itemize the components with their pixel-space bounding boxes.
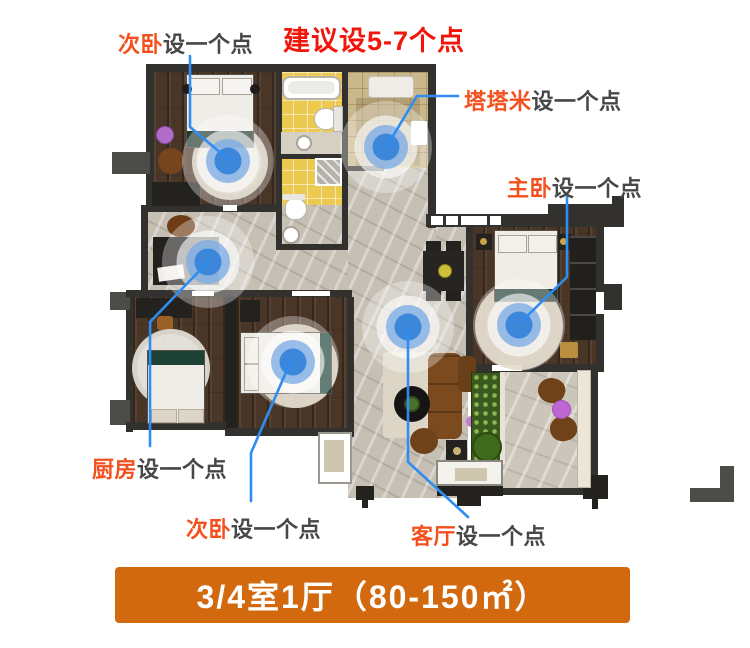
bed-bedroom-bottom-left [147, 350, 205, 424]
pillow [498, 235, 527, 253]
toilet-tank-bottom [283, 194, 305, 200]
window-master-right [596, 292, 604, 314]
window-3 [461, 216, 487, 225]
plant-purple [156, 126, 174, 144]
label-living: 客厅设一个点 [411, 519, 546, 551]
label-note-text: 设一个点 [456, 524, 546, 549]
window-1 [431, 216, 443, 225]
entry-pillar-left [356, 486, 374, 500]
marker-core [395, 314, 422, 341]
marker-core [195, 249, 222, 276]
marker-core [280, 349, 307, 376]
sink-basin [296, 135, 312, 151]
toilet-tank [333, 106, 343, 132]
label-note-text: 设一个点 [552, 176, 642, 201]
pillow [222, 78, 252, 95]
wall-stub-left-1 [112, 152, 150, 174]
wall-bedroom-divider [225, 297, 237, 432]
shower [315, 158, 342, 186]
entry-door-bump [457, 494, 481, 506]
dining-chair [446, 291, 461, 301]
wall-corridor-left [141, 205, 148, 300]
label-tatami: 塔塔米设一个点 [464, 84, 622, 116]
pillar-master-right [604, 284, 622, 310]
nightstand-bedroomBM [240, 300, 260, 322]
dining-chair [446, 241, 461, 251]
label-room-name: 客厅 [411, 524, 456, 549]
wall-bedroomBM-right [347, 297, 354, 437]
wall-master-left [466, 226, 473, 370]
wardrobe-master [570, 236, 596, 340]
bed-headboard [148, 351, 204, 365]
pillow [190, 78, 220, 95]
label-master: 主卧设一个点 [507, 171, 642, 203]
lamp-gold [480, 238, 487, 245]
sofa [428, 353, 462, 439]
wall-bracket-far-right-h [690, 488, 734, 502]
door-gap-bedroomBM [292, 291, 330, 296]
pouf [410, 428, 438, 454]
stool-tan [157, 316, 173, 330]
balcony-flowers-purple [552, 400, 571, 419]
balcony-bench [577, 370, 591, 488]
sink-small [282, 226, 300, 244]
label-room-name: 次卧 [118, 32, 163, 57]
plant-large [472, 432, 502, 462]
label-note-text: 设一个点 [231, 517, 321, 542]
toilet-bottom [285, 198, 307, 220]
label-kitchen: 厨房设一个点 [92, 452, 227, 484]
window-2 [446, 216, 458, 225]
dining-flowers [438, 264, 452, 278]
bathtub-inner [288, 81, 335, 94]
entry-pillar-left-stem [362, 500, 368, 508]
apartment-size-banner: 3/4室1厅（80-150㎡） [115, 567, 630, 623]
marker-core [215, 148, 242, 175]
label-room-name: 塔塔米 [464, 89, 532, 114]
page-title: 建议设5-7个点 [283, 19, 465, 58]
marker-core [373, 134, 400, 161]
label-note-text: 设一个点 [137, 457, 227, 482]
bedside-lamp [250, 84, 260, 94]
wall-bath-bottom [276, 244, 348, 250]
floor-plan [0, 0, 750, 648]
label-room-name: 厨房 [92, 457, 137, 482]
pillar-bottom-right-stem [592, 499, 598, 509]
label-note-text: 设一个点 [163, 32, 253, 57]
dining-chair [426, 241, 441, 251]
wall-top [146, 64, 436, 72]
bedside-lamp [182, 84, 192, 94]
lamp-gold [560, 238, 567, 245]
coffee-table-plant [404, 396, 420, 412]
marker-core [506, 312, 533, 339]
tatami-cushion [368, 76, 414, 98]
ac-platform-pad [324, 440, 344, 472]
wall-balcony-bottom [488, 488, 598, 495]
pillow [178, 409, 204, 423]
label-bedroom-bottom: 次卧设一个点 [186, 512, 321, 544]
bench-tan [560, 342, 578, 358]
window-4 [490, 216, 501, 225]
bathtub [282, 76, 341, 100]
wall-bath-left [276, 70, 282, 250]
chair-brown [158, 148, 184, 174]
label-bedroom-top: 次卧设一个点 [118, 27, 253, 59]
pillow [528, 235, 557, 253]
infographic: 建议设5-7个点 次卧设一个点 塔塔米设一个点 主卧设一个点 厨房设一个点 次卧… [0, 0, 750, 648]
label-note-text: 设一个点 [532, 89, 622, 114]
entry-cabinet-pad [455, 468, 487, 481]
label-room-name: 次卧 [186, 517, 231, 542]
pillow [151, 409, 177, 423]
label-room-name: 主卧 [507, 176, 552, 201]
side-table-bowl [453, 447, 461, 455]
